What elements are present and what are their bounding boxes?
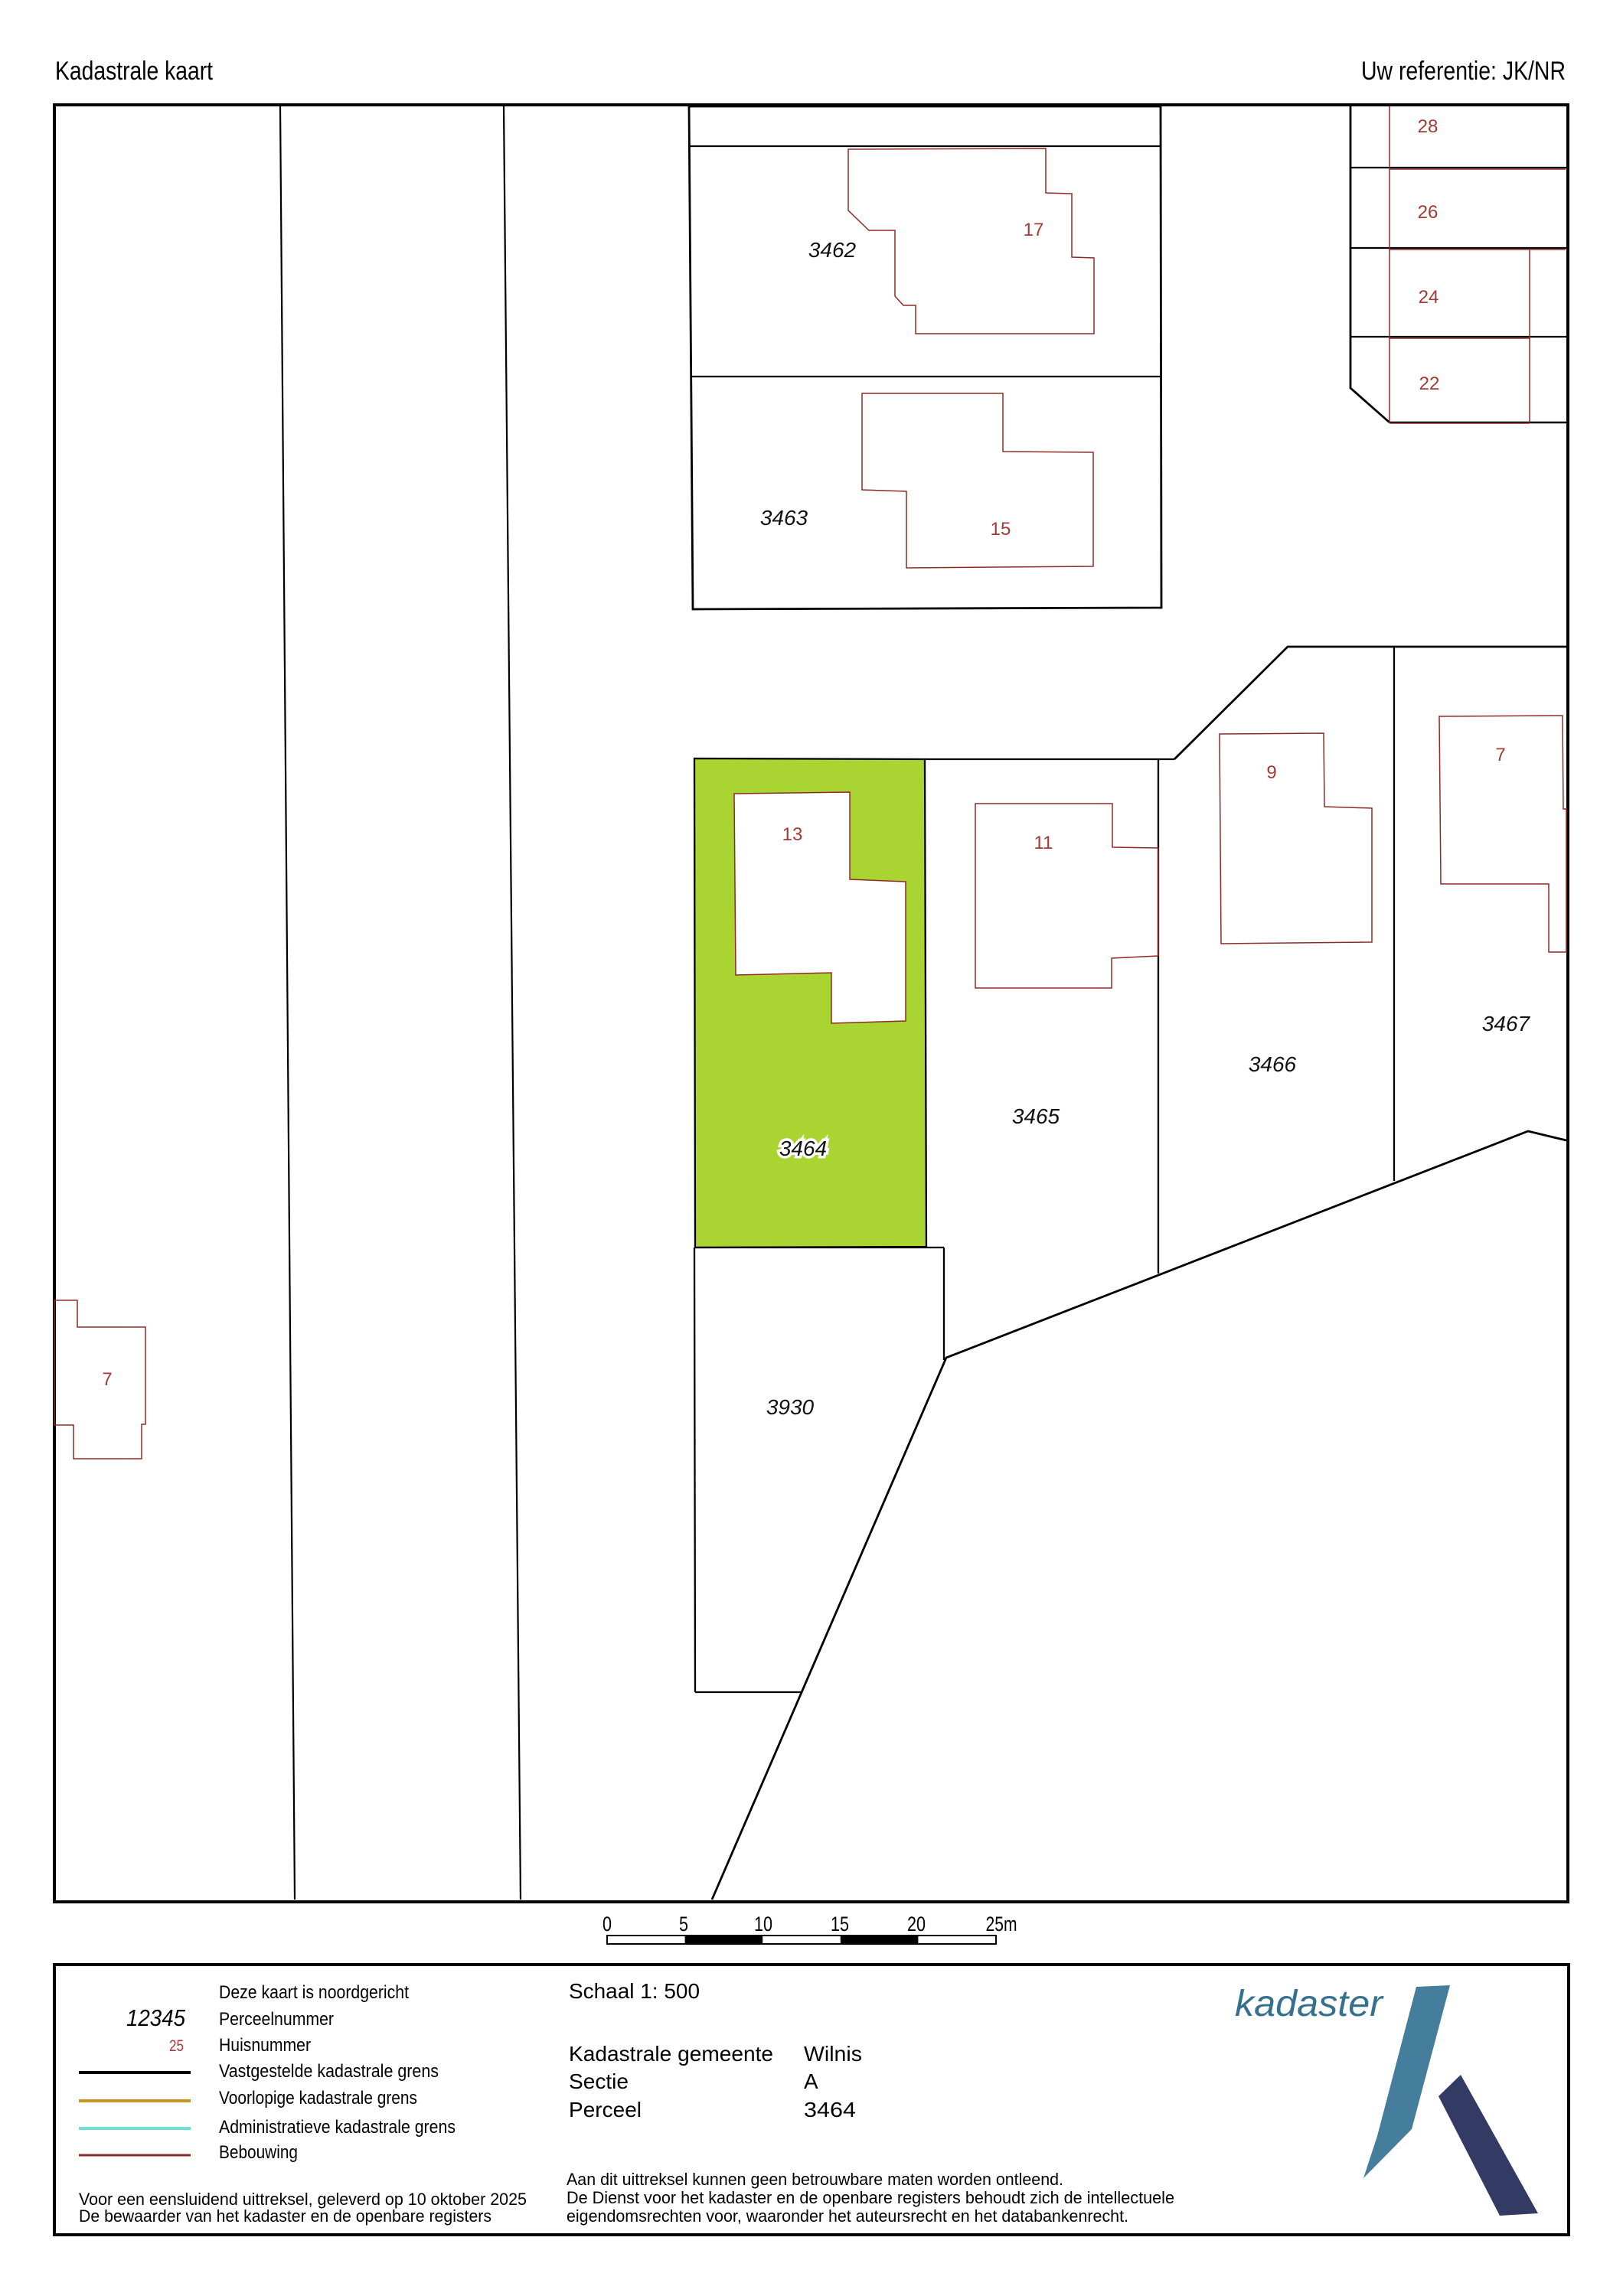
svg-text:kadaster: kadaster	[1235, 1984, 1384, 2024]
svg-text:15: 15	[831, 1913, 849, 1936]
svg-text:eigendomsrechten voor, waarond: eigendomsrechten voor, waaronder het aut…	[567, 2206, 1128, 2226]
svg-text:5: 5	[679, 1913, 688, 1936]
svg-text:Uw referentie: JK/NR: Uw referentie: JK/NR	[1361, 57, 1566, 86]
svg-text:11: 11	[1034, 833, 1053, 853]
svg-text:3464: 3464	[779, 1137, 827, 1160]
svg-text:9: 9	[1266, 762, 1276, 783]
svg-text:Aan dit uittreksel kunnen geen: Aan dit uittreksel kunnen geen betrouwba…	[567, 2170, 1063, 2189]
svg-text:28: 28	[1418, 116, 1438, 137]
svg-text:Kadastrale kaart: Kadastrale kaart	[55, 57, 213, 86]
svg-text:Kadastrale gemeente: Kadastrale gemeente	[569, 2042, 773, 2066]
svg-text:3462: 3462	[808, 238, 857, 262]
svg-text:Huisnummer: Huisnummer	[219, 2035, 311, 2056]
svg-text:3466: 3466	[1249, 1052, 1297, 1076]
svg-text:A: A	[804, 2069, 818, 2093]
svg-text:Wilnis: Wilnis	[804, 2042, 862, 2066]
svg-text:12345: 12345	[126, 2004, 186, 2031]
svg-text:0: 0	[603, 1913, 612, 1936]
svg-text:De bewaarder van het kadaster: De bewaarder van het kadaster en de open…	[79, 2206, 491, 2226]
svg-text:Bebouwing: Bebouwing	[219, 2142, 298, 2163]
svg-text:26: 26	[1418, 202, 1438, 223]
svg-text:Administratieve kadastrale gre: Administratieve kadastrale grens	[219, 2117, 456, 2138]
svg-text:24: 24	[1419, 287, 1439, 308]
svg-text:20: 20	[907, 1913, 926, 1936]
svg-text:15: 15	[991, 519, 1011, 540]
svg-text:Vastgestelde kadastrale grens: Vastgestelde kadastrale grens	[219, 2061, 439, 2082]
svg-text:3464: 3464	[804, 2098, 856, 2122]
svg-text:13: 13	[782, 824, 803, 845]
svg-text:22: 22	[1419, 373, 1440, 394]
svg-text:Sectie: Sectie	[569, 2069, 629, 2093]
svg-text:3465: 3465	[1012, 1104, 1060, 1128]
svg-text:Voorlopige kadastrale grens: Voorlopige kadastrale grens	[219, 2088, 417, 2108]
svg-text:7: 7	[102, 1369, 112, 1390]
svg-text:17: 17	[1024, 220, 1044, 240]
svg-text:Deze kaart is noordgericht: Deze kaart is noordgericht	[219, 1982, 409, 2003]
svg-text:10: 10	[754, 1913, 772, 1936]
svg-text:Perceelnummer: Perceelnummer	[219, 2009, 334, 2030]
svg-text:3463: 3463	[760, 506, 808, 530]
svg-text:25m: 25m	[986, 1913, 1017, 1936]
svg-text:Schaal 1: 500: Schaal 1: 500	[569, 1979, 700, 2003]
svg-text:Perceel: Perceel	[569, 2098, 642, 2122]
svg-text:3467: 3467	[1482, 1012, 1531, 1035]
svg-text:3930: 3930	[766, 1395, 815, 1419]
svg-text:25: 25	[169, 2037, 184, 2055]
svg-text:7: 7	[1495, 745, 1505, 765]
svg-text:De Dienst voor het kadaster en: De Dienst voor het kadaster en de openba…	[567, 2188, 1174, 2207]
